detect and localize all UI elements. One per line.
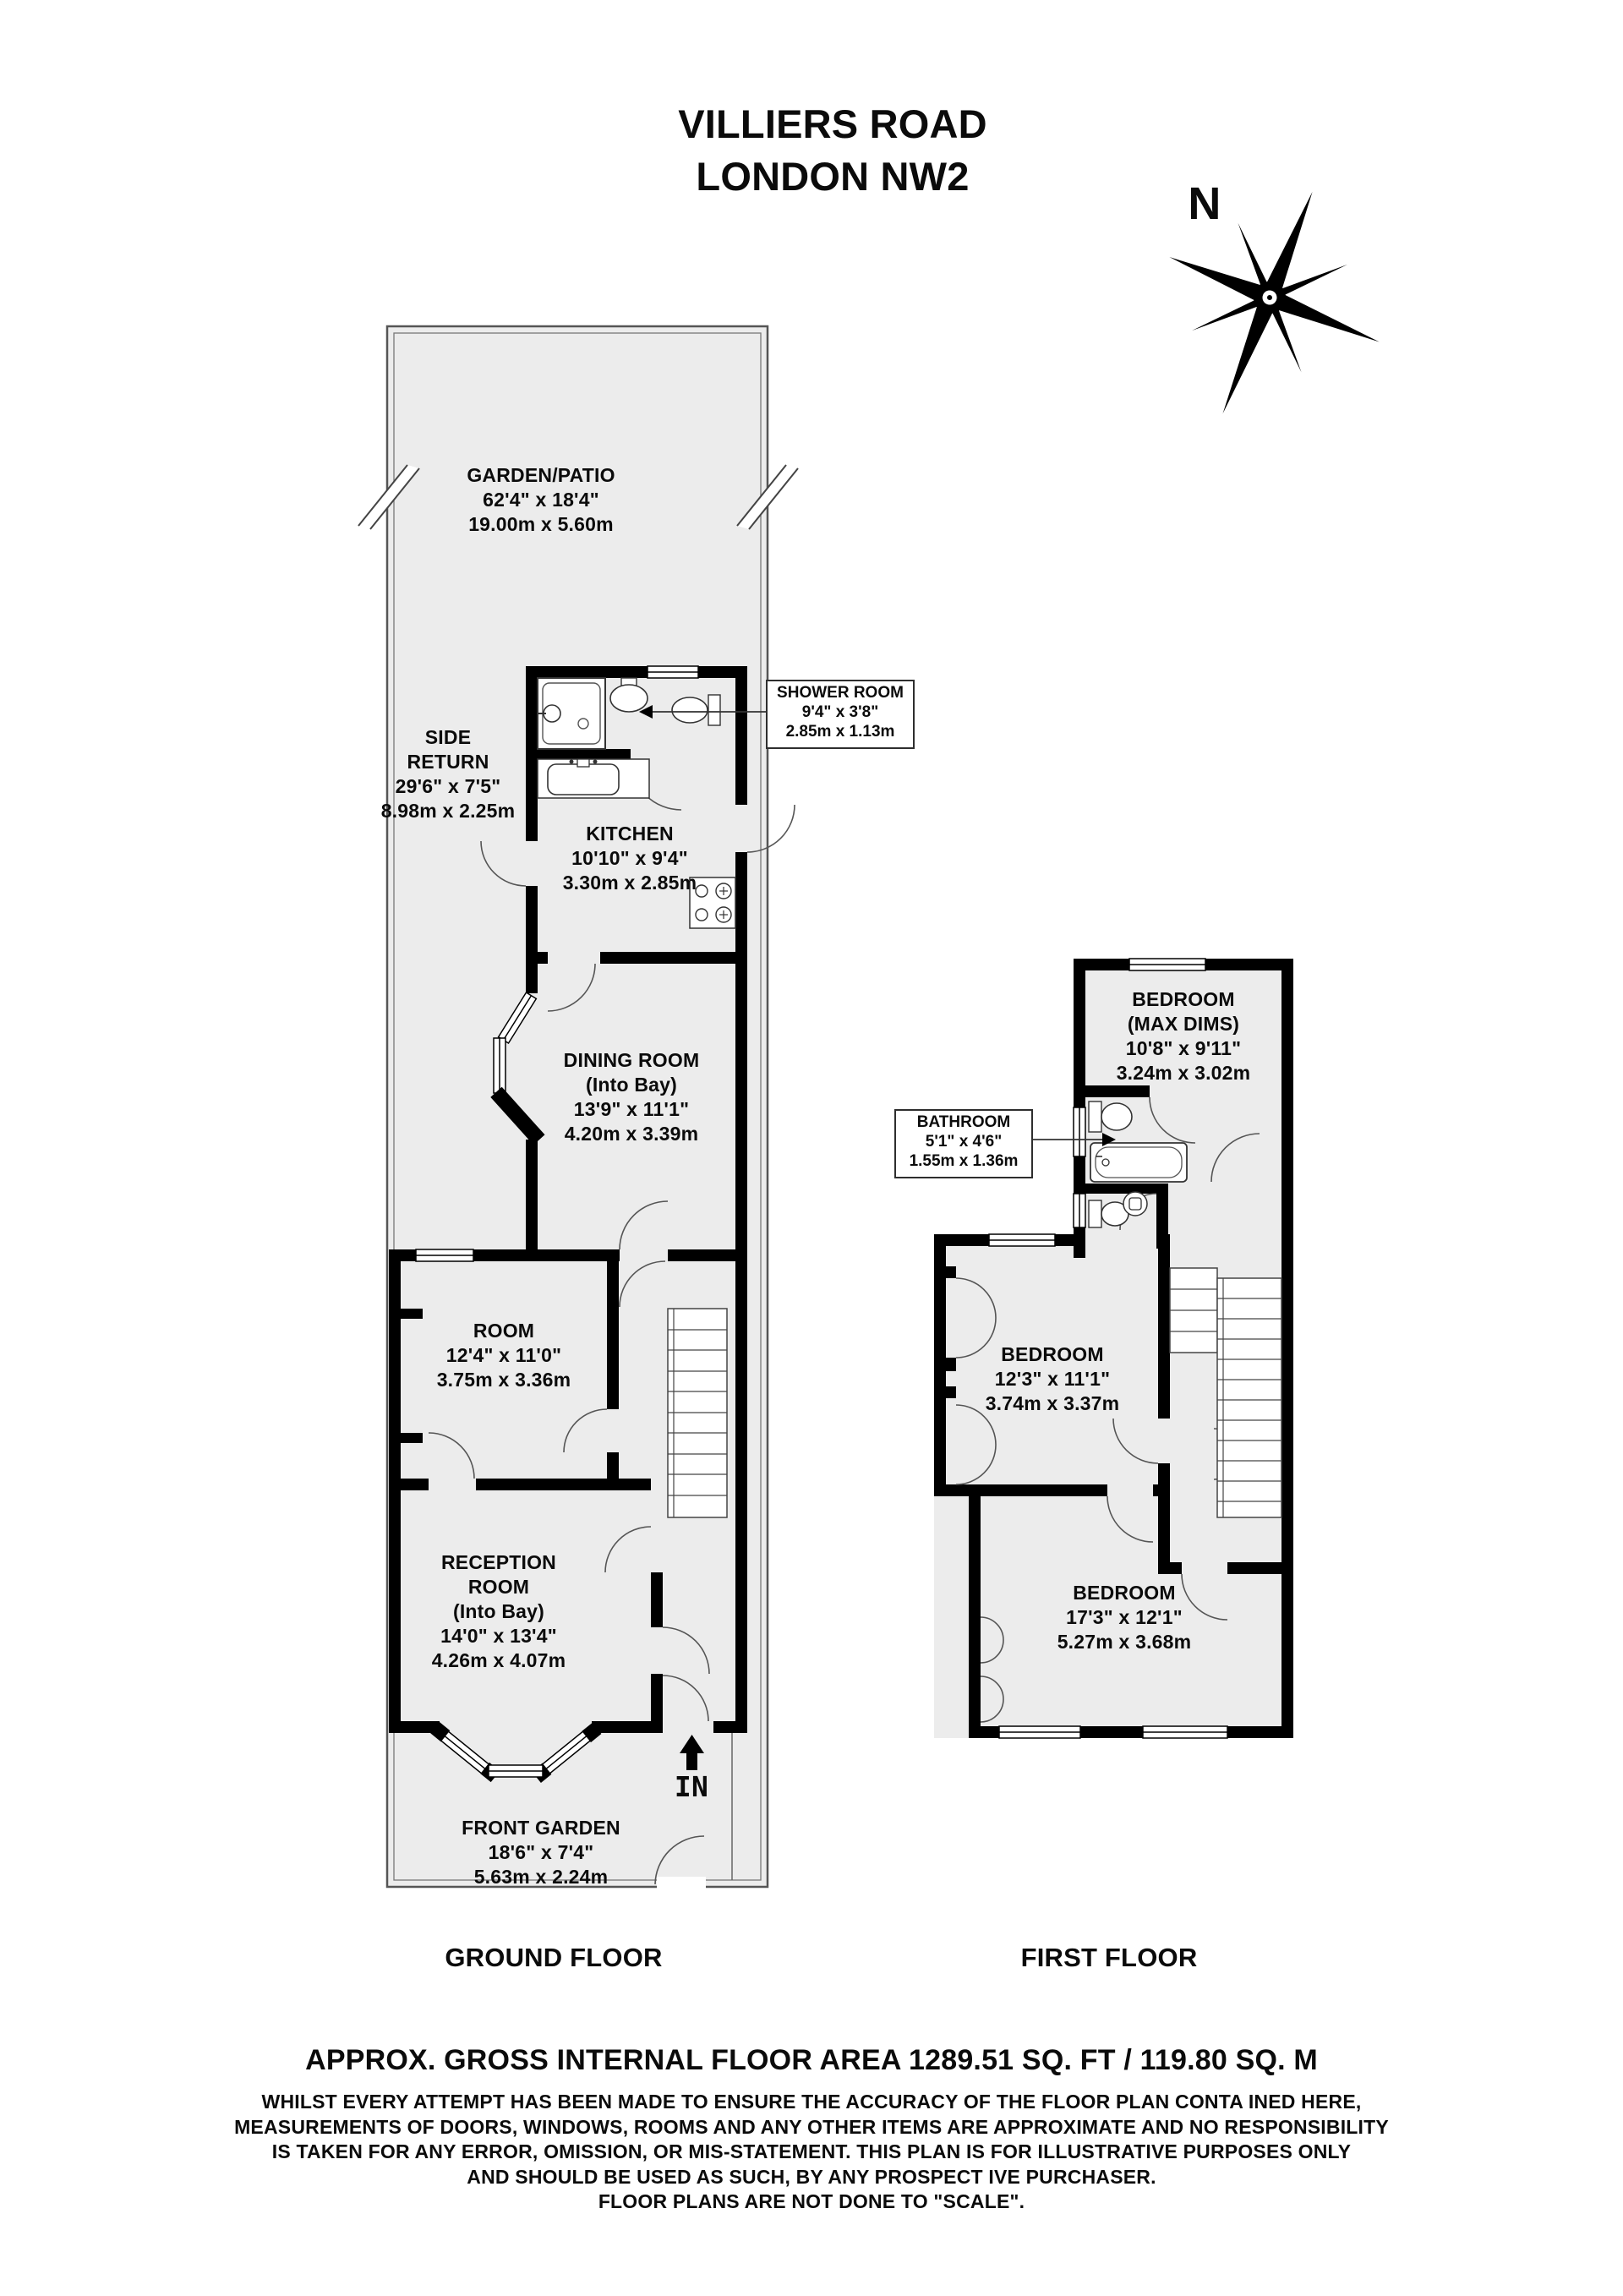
room-metric: 3.75m x 3.36m (402, 1368, 605, 1392)
basin-wc-icon (1123, 1192, 1147, 1216)
floor-area-summary: APPROX. GROSS INTERNAL FLOOR AREA 1289.5… (0, 2044, 1623, 2077)
shower-icon (538, 678, 605, 749)
page-title-line2: LONDON NW2 (579, 150, 1086, 203)
window-bedroom-front-2 (1143, 1726, 1227, 1738)
staircase-ground (668, 1309, 727, 1517)
floorplan-page: VILLIERS ROAD LONDON NW2 N GARDEN/PATIO … (0, 0, 1623, 2296)
garden-name: GARDEN/PATIO (414, 463, 668, 488)
window-reception-bay-front (489, 1765, 543, 1777)
first-floor-title: FIRST FLOOR (982, 1943, 1236, 1973)
bedroom-rear-qualifier: (MAX DIMS) (1090, 1012, 1276, 1036)
disclaimer: WHILST EVERY ATTEMPT HAS BEEN MADE TO EN… (0, 2090, 1623, 2215)
reception-room-label: RECEPTION ROOM (Into Bay) 14'0" x 13'4" … (397, 1550, 600, 1673)
disclaimer-line4: AND SHOULD BE USED AS SUCH, BY ANY PROSP… (0, 2165, 1623, 2190)
dining-room-name: DINING ROOM (547, 1048, 716, 1073)
front-garden-metric: 5.63m x 2.24m (414, 1865, 668, 1889)
bathroom-imperial: 5'1" x 4'6" (896, 1132, 1031, 1151)
bathroom-callout-leader (1030, 1133, 1116, 1146)
compass-icon (1114, 145, 1424, 458)
shower-room-callout: SHOWER ROOM 9'4" x 3'8" 2.85m x 1.13m (766, 680, 915, 749)
side-return-name2: RETURN (363, 750, 533, 774)
kitchen-label: KITCHEN 10'10" x 9'4" 3.30m x 2.85m (545, 822, 714, 895)
toilet-bathroom-icon (1089, 1102, 1132, 1132)
room-label: ROOM 12'4" x 11'0" 3.75m x 3.36m (402, 1319, 605, 1392)
toilet-wc-icon (1089, 1200, 1128, 1227)
bathroom-metric: 1.55m x 1.36m (896, 1151, 1031, 1171)
dining-room-label: DINING ROOM (Into Bay) 13'9" x 11'1" 4.2… (547, 1048, 716, 1146)
entrance-in-label: IN (666, 1770, 717, 1803)
bedroom-front-label: BEDROOM 17'3" x 12'1" 5.27m x 3.68m (1023, 1581, 1226, 1654)
reception-metric: 4.26m x 4.07m (397, 1648, 600, 1673)
disclaimer-line1: WHILST EVERY ATTEMPT HAS BEEN MADE TO EN… (0, 2090, 1623, 2115)
shower-room-name: SHOWER ROOM (768, 683, 913, 702)
disclaimer-line3: IS TAKEN FOR ANY ERROR, OMISSION, OR MIS… (0, 2140, 1623, 2165)
garden-imperial: 62'4" x 18'4" (414, 488, 668, 512)
side-return-imperial: 29'6" x 7'5" (363, 774, 533, 799)
bedroom-rear-imperial: 10'8" x 9'11" (1090, 1036, 1276, 1061)
page-title-line1: VILLIERS ROAD (579, 98, 1086, 150)
window-dining-bay-mid (494, 1038, 505, 1093)
page-title: VILLIERS ROAD LONDON NW2 (579, 98, 1086, 203)
shower-room-metric: 2.85m x 1.13m (768, 722, 913, 741)
bathroom-name: BATHROOM (896, 1112, 1031, 1132)
reception-name2: ROOM (397, 1575, 600, 1599)
garden-metric: 19.00m x 5.60m (414, 512, 668, 537)
bedroom-front-metric: 5.27m x 3.68m (1023, 1630, 1226, 1654)
bedroom-middle-metric: 3.74m x 3.37m (959, 1391, 1145, 1416)
bedroom-rear-metric: 3.24m x 3.02m (1090, 1061, 1276, 1085)
toilet-icon (672, 695, 720, 725)
kitchen-imperial: 10'10" x 9'4" (545, 846, 714, 871)
bedroom-middle-name: BEDROOM (959, 1342, 1145, 1367)
shower-room-imperial: 9'4" x 3'8" (768, 702, 913, 722)
bedroom-rear-label: BEDROOM (MAX DIMS) 10'8" x 9'11" 3.24m x… (1090, 987, 1276, 1085)
room-imperial: 12'4" x 11'0" (402, 1343, 605, 1368)
side-return-metric: 8.98m x 2.25m (363, 799, 533, 823)
front-garden-imperial: 18'6" x 7'4" (414, 1840, 668, 1865)
bedroom-middle-imperial: 12'3" x 11'1" (959, 1367, 1145, 1391)
garden-label: GARDEN/PATIO 62'4" x 18'4" 19.00m x 5.60… (414, 463, 668, 537)
disclaimer-line2: MEASUREMENTS OF DOORS, WINDOWS, ROOMS AN… (0, 2115, 1623, 2140)
dining-room-qualifier: (Into Bay) (547, 1073, 716, 1097)
window-bathroom (1074, 1107, 1085, 1156)
front-garden-label: FRONT GARDEN 18'6" x 7'4" 5.63m x 2.24m (414, 1816, 668, 1889)
side-return-name1: SIDE (363, 725, 533, 750)
window-bedroom-rear (1129, 959, 1205, 970)
bathroom-callout: BATHROOM 5'1" x 4'6" 1.55m x 1.36m (894, 1109, 1033, 1178)
window-wc (1074, 1194, 1085, 1227)
reception-imperial: 14'0" x 13'4" (397, 1624, 600, 1648)
bathtub-icon (1090, 1143, 1187, 1182)
reception-name1: RECEPTION (397, 1550, 600, 1575)
compass-north-label: N (1175, 178, 1234, 230)
kitchen-sink-icon (538, 759, 649, 798)
disclaimer-line5: FLOOR PLANS ARE NOT DONE TO "SCALE". (0, 2189, 1623, 2215)
front-garden-name: FRONT GARDEN (414, 1816, 668, 1840)
window-bedroom-front-1 (999, 1726, 1080, 1738)
kitchen-name: KITCHEN (545, 822, 714, 846)
window-room-top (416, 1249, 473, 1261)
dining-room-imperial: 13'9" x 11'1" (547, 1097, 716, 1122)
floorplan-drawing (0, 0, 1623, 2296)
bedroom-rear-name: BEDROOM (1090, 987, 1276, 1012)
dining-room-metric: 4.20m x 3.39m (547, 1122, 716, 1146)
bedroom-middle-label: BEDROOM 12'3" x 11'1" 3.74m x 3.37m (959, 1342, 1145, 1416)
side-return-label: SIDE RETURN 29'6" x 7'5" 8.98m x 2.25m (363, 725, 533, 823)
window-bedroom-middle (989, 1234, 1055, 1246)
reception-qualifier: (Into Bay) (397, 1599, 600, 1624)
bedroom-front-imperial: 17'3" x 12'1" (1023, 1605, 1226, 1630)
ground-floor-title: GROUND FLOOR (427, 1943, 680, 1973)
room-name: ROOM (402, 1319, 605, 1343)
window-kitchen-top (648, 666, 698, 678)
kitchen-metric: 3.30m x 2.85m (545, 871, 714, 895)
bedroom-front-name: BEDROOM (1023, 1581, 1226, 1605)
